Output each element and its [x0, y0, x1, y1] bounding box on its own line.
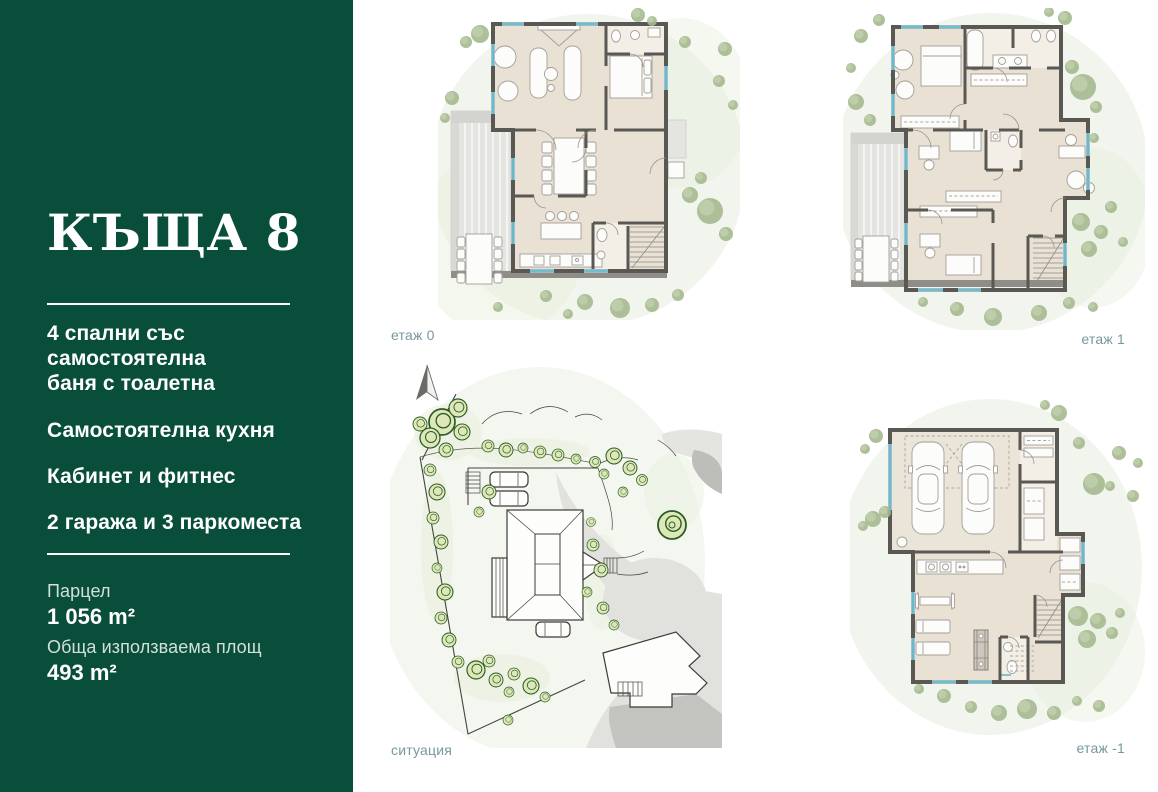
- spec-value: 493 m²: [47, 659, 327, 687]
- feature-item: 2 гаража и 3 паркоместа: [47, 510, 327, 535]
- tree-symbols: [353, 0, 371, 18]
- divider: [47, 303, 290, 305]
- floor-plan-etazh-0: [438, 8, 740, 320]
- spec-total-area: Обща използваема площ 493 m²: [47, 636, 327, 686]
- plan-caption: ситуация: [391, 742, 452, 759]
- floor-plan-etazh-1: [843, 8, 1145, 330]
- spec-label: Обща използваема площ: [47, 636, 327, 659]
- feature-list: 4 спални със самостоятелна баня с тоалет…: [47, 321, 327, 556]
- feature-item: Кабинет и фитнес: [47, 464, 327, 489]
- site-plan: [390, 362, 722, 748]
- plan-caption: етаж 1: [843, 331, 1125, 348]
- plans-canvas: етаж 0: [353, 0, 1158, 792]
- balcony-right: [666, 120, 686, 178]
- brochure-page: КЪЩА 8 4 спални със самостоятелна баня с…: [0, 0, 1158, 792]
- feature-item: 4 спални със самостоятелна баня с тоалет…: [47, 321, 327, 397]
- plan-caption: етаж -1: [843, 740, 1125, 757]
- page-title: КЪЩА 8: [47, 208, 301, 258]
- sidebar: КЪЩА 8 4 спални със самостоятелна баня с…: [0, 0, 353, 792]
- spec-value: 1 056 m²: [47, 603, 327, 631]
- divider: [47, 553, 290, 555]
- spec-label: Парцел: [47, 580, 327, 603]
- north-arrow-icon: [416, 365, 438, 400]
- spec-plot: Парцел 1 056 m²: [47, 580, 327, 630]
- floor-plan-etazh-minus-1: [850, 392, 1145, 748]
- feature-item: Самостоятелна кухня: [47, 418, 327, 443]
- plan-caption: етаж 0: [391, 327, 435, 344]
